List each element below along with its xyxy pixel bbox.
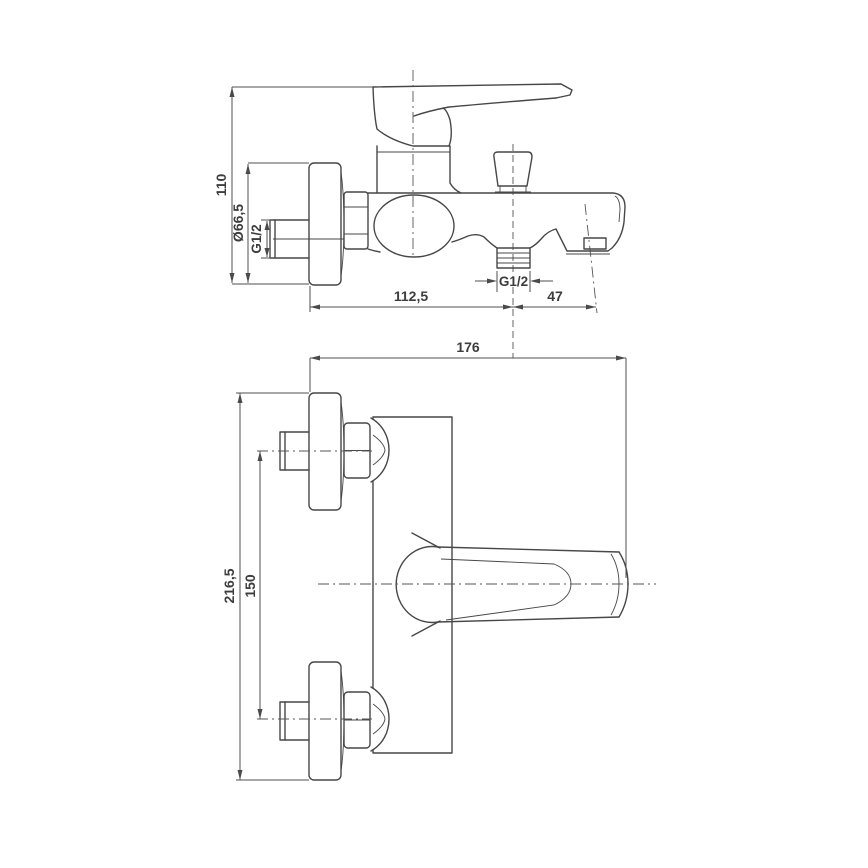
dim-connection-centres: 150 [242,451,263,719]
cartridge-housing [374,195,454,257]
shower-port-shoulder [452,235,497,248]
wall-union-bottom [257,662,389,780]
wall-flange [309,393,341,510]
side-view: 110 Ø66,5 G1/2 112,5 47 [213,70,625,358]
aerator-axis-centerline [585,204,597,313]
dim-overall-depth: 176 [310,339,626,578]
dim-depth-chain: 112,5 47 [310,286,596,312]
body-outline [368,193,625,251]
tangent-tick [412,621,440,636]
hex-nut [344,192,368,249]
plan-view: 176 216,5 150 [221,339,656,780]
dim-wall-to-outlet-label: 112,5 [394,288,428,304]
eccentric-mask [371,419,389,481]
handle-lever-underside [414,98,556,116]
dim-shower-thread-label: G1/2 [499,274,528,289]
drawing-canvas: 110 Ø66,5 G1/2 112,5 47 [0,0,868,868]
handle-round-end [396,547,438,623]
tangent-tick [412,533,440,548]
handle-end-cap [619,552,628,617]
dim-overall-depth-label: 176 [456,339,480,355]
dim-inlet-thread-label: G1/2 [249,224,264,253]
handle-lever-top [373,84,572,98]
handle-base-curl [443,108,451,146]
handle-base [373,87,449,146]
body-corner-inner [615,196,620,222]
handle-plan [318,533,656,636]
handle-neck-right [450,146,461,193]
dim-connection-centres-label: 150 [242,574,258,598]
dim-flange-diameter-label: Ø66,5 [230,204,246,242]
eccentric-mask [371,688,389,750]
handle-taper-inner [441,559,571,620]
wall-flange [309,163,341,285]
wall-flange [309,662,341,780]
technical-drawing: 110 Ø66,5 G1/2 112,5 47 [0,0,868,868]
handle-lever-edge [438,547,619,552]
wall-union-top [257,393,389,510]
handle-end-cap-inner [611,554,619,615]
aerator [584,238,606,249]
dim-overall-width-label: 216,5 [221,568,237,603]
dim-outlet-to-spout-label: 47 [547,288,563,304]
dim-shower-thread: G1/2 [475,271,553,292]
body-underside [368,249,380,252]
dim-overall-height: 110 [213,87,373,284]
dim-overall-height-label: 110 [213,173,229,196]
